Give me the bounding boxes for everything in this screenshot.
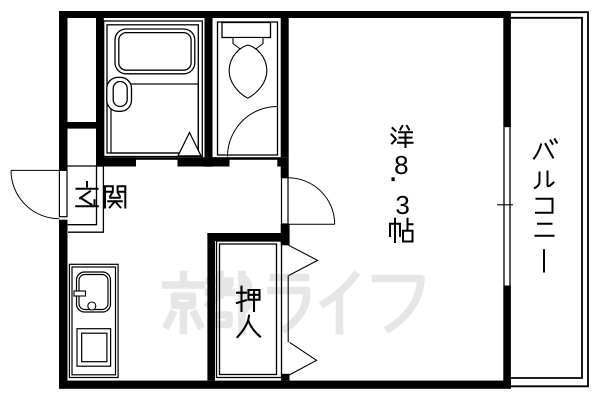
svg-text:3: 3 [395,190,409,220]
svg-text:8: 8 [394,150,408,180]
